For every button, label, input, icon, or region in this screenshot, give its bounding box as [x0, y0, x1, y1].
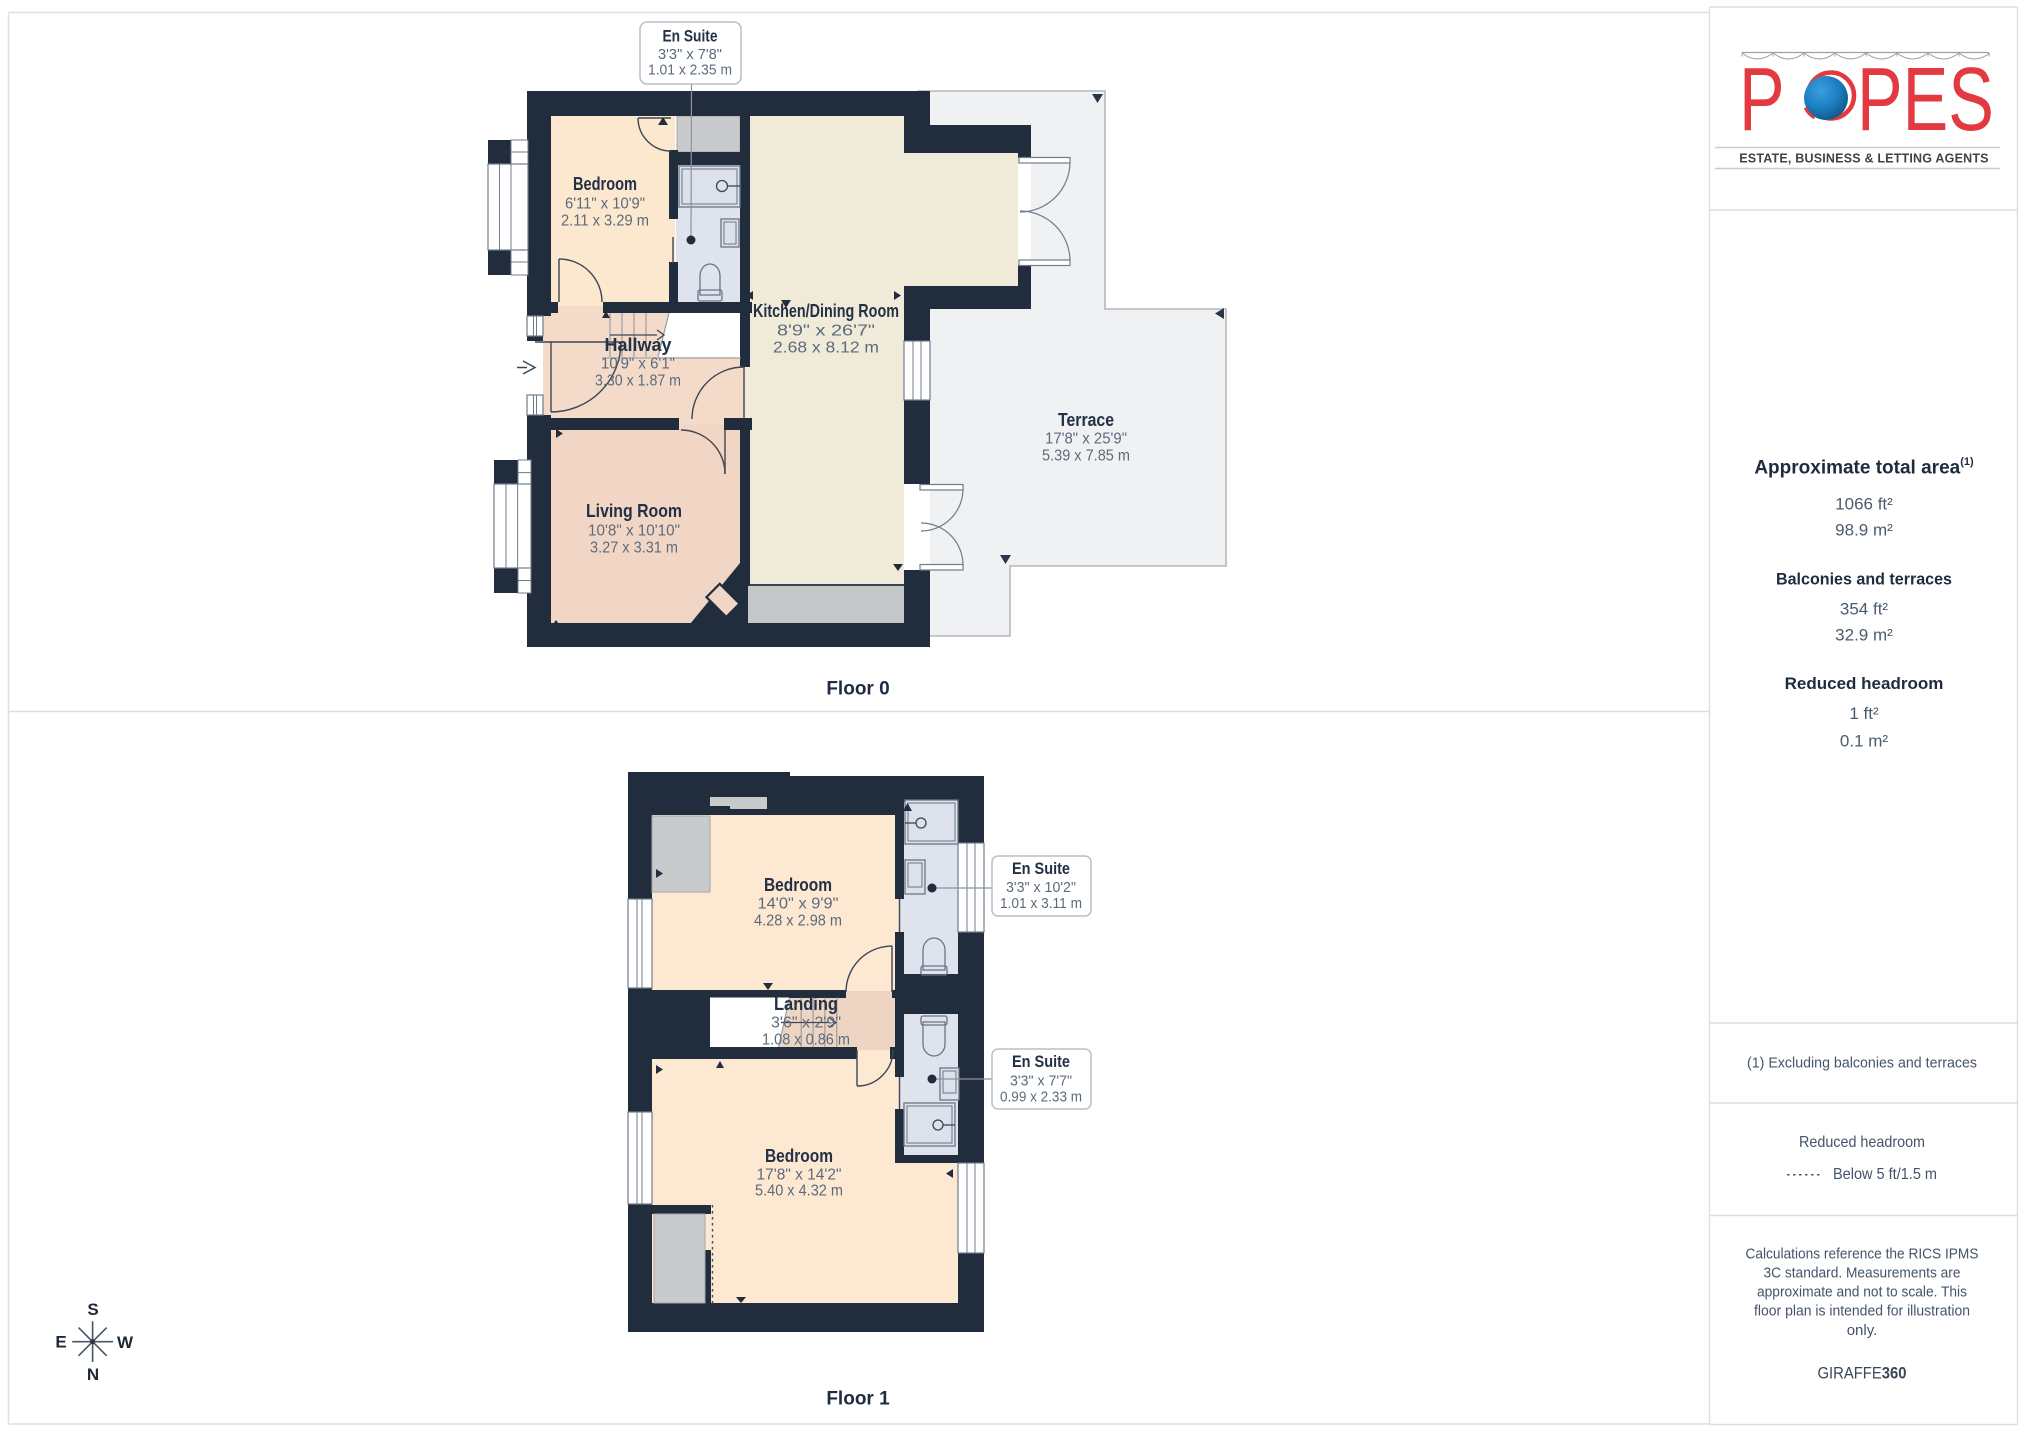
- svg-text:3'3" x 7'7": 3'3" x 7'7": [1010, 1074, 1072, 1090]
- svg-text:(1) Excluding balconies and te: (1) Excluding balconies and terraces: [1747, 1055, 1977, 1072]
- svg-text:Living Room: Living Room: [586, 501, 682, 521]
- svg-text:354 ft²: 354 ft²: [1840, 600, 1889, 619]
- svg-text:4.28 x 2.98 m: 4.28 x 2.98 m: [754, 913, 842, 930]
- svg-text:0.99 x 2.33 m: 0.99 x 2.33 m: [1000, 1090, 1082, 1106]
- svg-text:5.39 x 7.85 m: 5.39 x 7.85 m: [1042, 448, 1130, 465]
- svg-text:1 ft²: 1 ft²: [1849, 704, 1879, 723]
- svg-text:En Suite: En Suite: [1012, 860, 1070, 878]
- svg-text:10'8" x 10'10": 10'8" x 10'10": [588, 523, 680, 540]
- svg-text:3C standard. Measurements are: 3C standard. Measurements are: [1764, 1265, 1961, 1282]
- svg-text:approximate and not to scale.: approximate and not to scale. This: [1757, 1284, 1967, 1301]
- svg-text:Below 5 ft/1.5 m: Below 5 ft/1.5 m: [1833, 1166, 1937, 1183]
- svg-text:Kitchen/Dining Room: Kitchen/Dining Room: [753, 301, 899, 321]
- svg-text:only.: only.: [1847, 1322, 1878, 1339]
- svg-text:S: S: [87, 1300, 98, 1319]
- svg-text:E: E: [55, 1333, 66, 1352]
- svg-text:Calculations reference the RIC: Calculations reference the RICS IPMS: [1746, 1246, 1979, 1263]
- svg-text:2.68 x 8.12 m: 2.68 x 8.12 m: [773, 340, 879, 357]
- svg-text:W: W: [117, 1333, 134, 1352]
- svg-text:Bedroom: Bedroom: [764, 875, 832, 895]
- svg-text:3.30 x 1.87 m: 3.30 x 1.87 m: [595, 373, 681, 390]
- svg-text:Hallway: Hallway: [605, 335, 672, 355]
- svg-text:2.11 x 3.29 m: 2.11 x 3.29 m: [561, 213, 649, 230]
- svg-text:PES: PES: [1857, 49, 1994, 149]
- svg-text:3'3" x 10'2": 3'3" x 10'2": [1006, 880, 1076, 896]
- svg-text:P: P: [1739, 49, 1785, 149]
- svg-text:32.9 m²: 32.9 m²: [1835, 626, 1893, 645]
- svg-text:5.40 x 4.32 m: 5.40 x 4.32 m: [755, 1183, 843, 1200]
- svg-text:17'8" x 14'2": 17'8" x 14'2": [757, 1167, 842, 1184]
- svg-text:1066 ft²: 1066 ft²: [1835, 495, 1893, 514]
- svg-text:98.9 m²: 98.9 m²: [1835, 521, 1893, 540]
- svg-text:3.27 x 3.31 m: 3.27 x 3.31 m: [590, 540, 678, 557]
- svg-text:floor plan is intended for ill: floor plan is intended for illustration: [1754, 1303, 1970, 1320]
- svg-text:3'6" x 2'9": 3'6" x 2'9": [771, 1015, 841, 1032]
- svg-text:0.1 m²: 0.1 m²: [1840, 732, 1889, 751]
- svg-text:GIRAFFE360: GIRAFFE360: [1818, 1365, 1907, 1383]
- svg-text:Reduced headroom: Reduced headroom: [1785, 674, 1944, 693]
- svg-text:14'0" x 9'9": 14'0" x 9'9": [758, 896, 839, 913]
- svg-text:1.08 x 0.86 m: 1.08 x 0.86 m: [762, 1032, 850, 1049]
- svg-text:Approximate total area(1): Approximate total area(1): [1754, 456, 1974, 479]
- svg-text:1.01 x 3.11 m: 1.01 x 3.11 m: [1000, 896, 1082, 912]
- svg-text:Bedroom: Bedroom: [573, 174, 637, 194]
- svg-text:Landing: Landing: [774, 994, 838, 1014]
- svg-text:Floor 0: Floor 0: [826, 679, 889, 700]
- svg-text:3'3" x 7'8": 3'3" x 7'8": [658, 47, 722, 63]
- svg-text:8'9" x 26'7": 8'9" x 26'7": [777, 323, 875, 340]
- svg-text:En Suite: En Suite: [663, 28, 718, 46]
- svg-text:En Suite: En Suite: [1012, 1053, 1070, 1071]
- svg-text:10'9" x 6'1": 10'9" x 6'1": [601, 356, 675, 373]
- svg-text:ESTATE, BUSINESS & LETTING AGE: ESTATE, BUSINESS & LETTING AGENTS: [1739, 152, 1988, 166]
- svg-text:Reduced headroom: Reduced headroom: [1799, 1134, 1925, 1151]
- svg-text:17'8" x 25'9": 17'8" x 25'9": [1045, 431, 1127, 448]
- svg-text:Terrace: Terrace: [1058, 410, 1114, 430]
- svg-text:Balconies and terraces: Balconies and terraces: [1776, 570, 1952, 589]
- svg-text:Bedroom: Bedroom: [765, 1146, 833, 1166]
- svg-text:N: N: [87, 1365, 99, 1384]
- svg-text:Floor 1: Floor 1: [826, 1389, 890, 1410]
- svg-text:1.01 x 2.35 m: 1.01 x 2.35 m: [648, 63, 732, 79]
- svg-text:6'11" x 10'9": 6'11" x 10'9": [565, 196, 645, 213]
